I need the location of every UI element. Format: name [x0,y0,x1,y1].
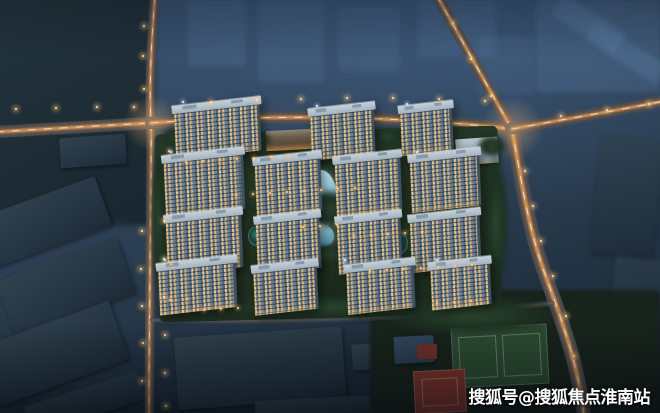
tower-facade [346,265,415,315]
residential-tower [157,254,240,315]
residential-tower [409,146,485,213]
residential-tower [252,258,321,316]
residential-tower [399,99,456,156]
tower-facade [335,157,403,217]
residential-tower [254,149,326,217]
aerial-night-render: 搜狐号@搜狐焦点淮南站 [0,0,660,413]
tower-facade [158,263,237,316]
residential-tower [334,148,406,216]
tower-facade [253,266,318,315]
watermark: 搜狐号@搜狐焦点淮南站 [469,383,651,408]
tower-facade [410,155,482,213]
tower-facade [430,264,491,311]
commercial-strip [266,129,313,151]
residential-complex [0,0,660,413]
residential-tower [345,256,418,314]
residential-tower [429,255,494,310]
